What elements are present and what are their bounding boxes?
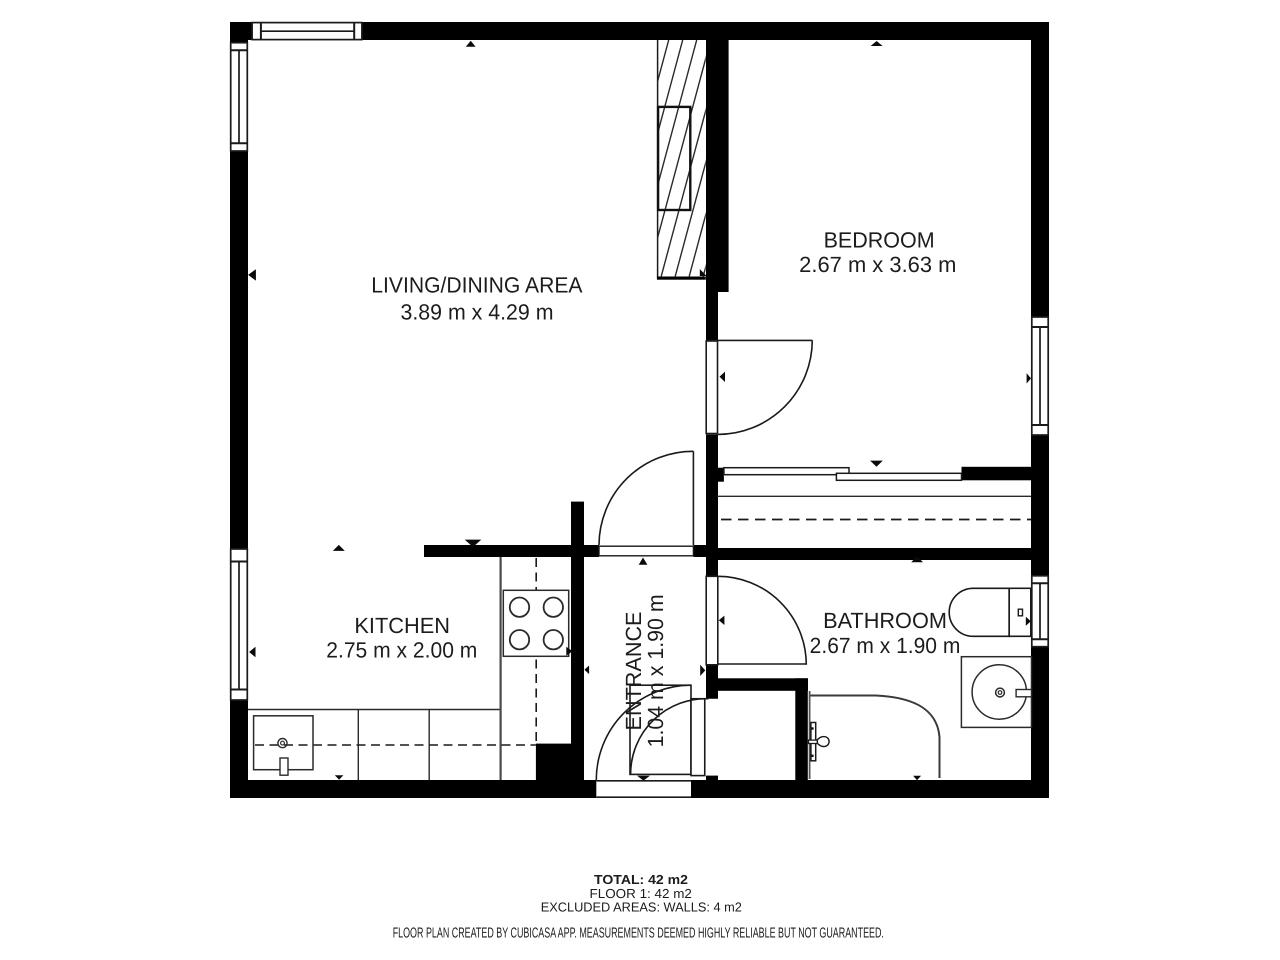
svg-text:EXCLUDED AREAS: WALLS: 4 m2: EXCLUDED AREAS: WALLS: 4 m2: [541, 900, 742, 915]
svg-text:TOTAL: 42 m2: TOTAL: 42 m2: [594, 872, 688, 887]
svg-text:2.67 m x 1.90 m: 2.67 m x 1.90 m: [810, 633, 961, 658]
svg-text:2.67 m x 3.63 m: 2.67 m x 3.63 m: [799, 252, 956, 277]
svg-text:3.89 m x 4.29 m: 3.89 m x 4.29 m: [400, 299, 553, 324]
svg-text:2.75 m x 2.00 m: 2.75 m x 2.00 m: [326, 637, 477, 662]
svg-text:BEDROOM: BEDROOM: [824, 227, 935, 252]
svg-text:FLOOR PLAN CREATED BY CUBICASA: FLOOR PLAN CREATED BY CUBICASA APP. MEAS…: [393, 926, 884, 942]
svg-text:LIVING/DINING AREA: LIVING/DINING AREA: [371, 272, 583, 297]
svg-text:KITCHEN: KITCHEN: [354, 613, 450, 638]
svg-text:BATHROOM: BATHROOM: [823, 608, 947, 633]
svg-text:1.04 m x 1.90 m: 1.04 m x 1.90 m: [643, 594, 668, 747]
